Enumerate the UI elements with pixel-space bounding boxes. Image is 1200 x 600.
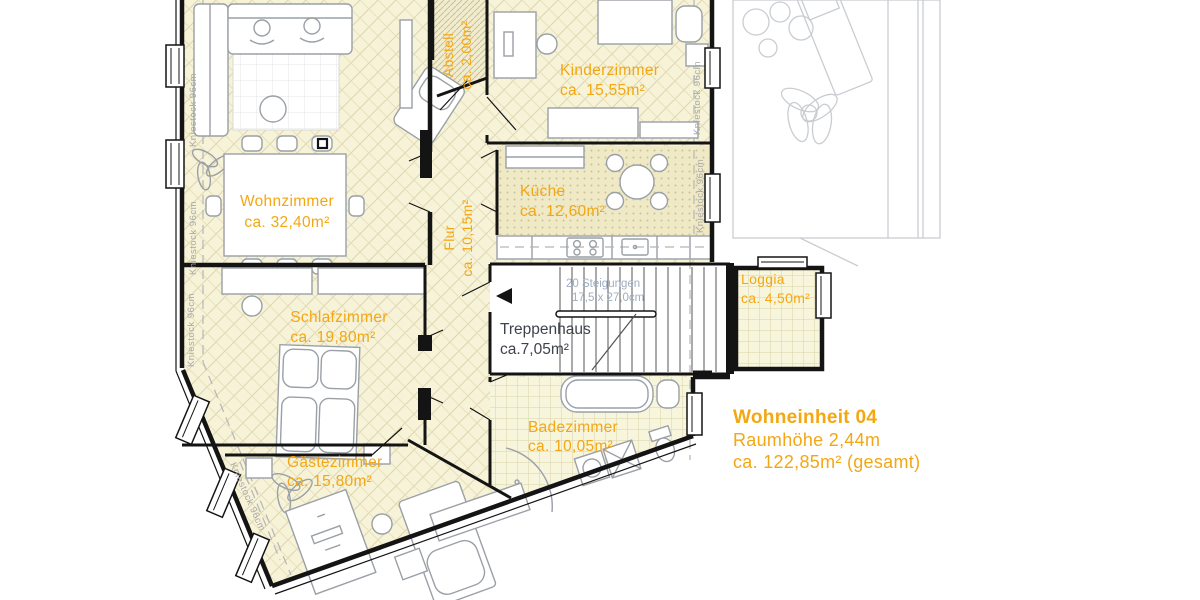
room-area: ca. 10,05m² [528,438,613,455]
chair [242,296,262,316]
chair [537,34,557,54]
kniestock-label: Kniestock 96cm [692,61,703,135]
window [166,45,184,87]
sofa [228,4,352,54]
chair [651,155,668,172]
room-name: Gästezimmer [287,454,382,471]
room-area: ca. 4,50m² [741,290,810,306]
window [166,140,184,188]
room-name: Treppenhaus [500,321,591,338]
room-name: Schlafzimmer [290,309,387,326]
washbasin [657,380,679,408]
pillow [676,6,702,42]
window [816,273,831,318]
adjacent-unit [733,0,940,266]
room-area: ca. 15,55m² [560,82,645,99]
shelf [318,268,425,294]
desk [494,12,536,78]
chair [651,193,668,210]
room-area: ca. 10,15m² [459,199,475,276]
chair [372,514,392,534]
kniestock-label: Kniestock 96cm [695,159,706,233]
kitchen-table [620,165,654,199]
stairs-note-line1: 20 Steigungen [566,278,640,290]
window [687,393,702,435]
room-name: Badezimmer [528,419,618,436]
room-area: ca. 19,80m² [290,329,375,346]
room-name: Kinderzimmer [560,62,659,79]
room-name: Küche [520,183,565,200]
neighbor-plant-icon [778,83,841,145]
stair-handrail [556,311,656,317]
unit-ceiling-height: Raumhöhe 2,44m [733,430,880,450]
bathtub [561,376,653,412]
shelf [548,108,638,138]
bed [598,0,672,44]
room-area: ca. 32,40m² [244,214,329,231]
chair [607,155,624,172]
sofa [194,4,228,136]
room-name: Flur [441,225,457,250]
kniestock-label: Kniestock 96cm [186,293,197,367]
room-name: Abstell [440,33,456,77]
stairs-note-line2: 17,5 x 27,0cm [572,292,644,304]
coffee-table [260,96,286,122]
unit-info: Wohneinheit 04 Raumhöhe 2,44m ca. 122,85… [733,407,920,472]
loggia-door [758,257,807,268]
room-name: Loggia [741,271,785,287]
shelf-board [400,20,412,108]
plan-marker [318,139,327,148]
chair [607,193,624,210]
double-bed [276,345,360,460]
room-area: ca. 15,80m² [287,473,372,490]
window [705,174,720,222]
sideboard [640,122,698,138]
neighbor-plant-icon [759,39,777,57]
room-area: ca. 12,60m² [520,203,605,220]
kniestock-label: Kniestock 96cm [188,73,199,147]
unit-total-area: ca. 122,85m² (gesamt) [733,452,920,472]
nightstand [246,458,272,478]
room-area: ca. 2,00m² [458,20,474,89]
neighbor-lounge-chair [795,0,873,96]
room-area: ca.7,05m² [500,341,569,358]
kitchen-counter [497,236,712,259]
desk [222,268,312,294]
kniestock-label: Kniestock 96cm [188,201,199,275]
floor-plan: Wohnzimmer ca. 32,40m² Kinderzimmer ca. … [0,0,1200,600]
unit-title: Wohneinheit 04 [733,407,877,428]
window [705,48,720,88]
room-name: Wohnzimmer [240,193,334,210]
